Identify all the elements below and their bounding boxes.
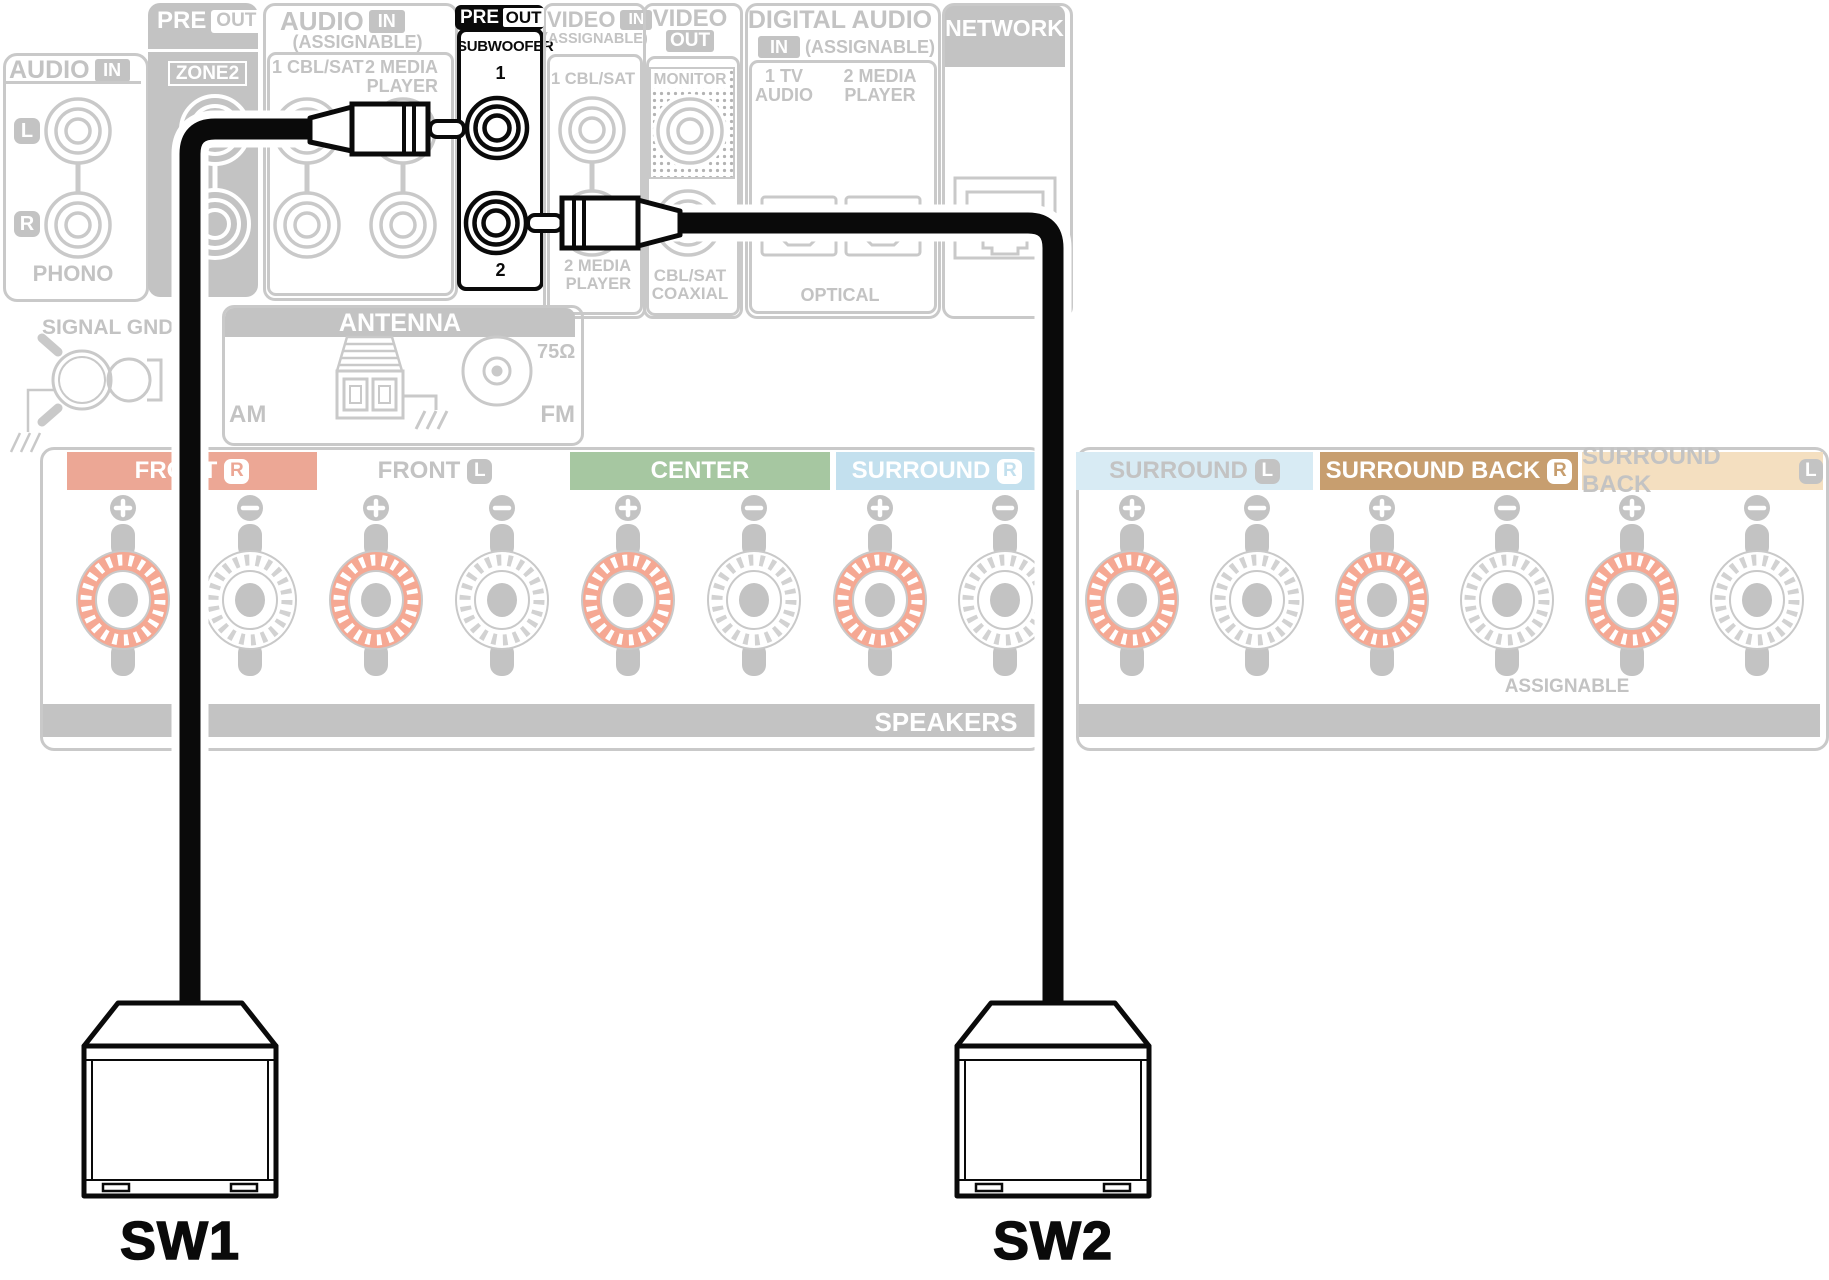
sw2-subwoofer-box: [957, 1003, 1149, 1196]
terminal-surround-r-pos: [834, 495, 926, 676]
terminal-surround-back-r-neg: [1461, 495, 1553, 676]
subwoofer-jack-1: [467, 98, 527, 158]
graphics-layer: [0, 0, 1829, 1280]
sw2-rca-plug: [528, 198, 680, 248]
speaker-terminals: [77, 495, 1803, 676]
am-terminal: [337, 371, 447, 429]
sw1-rca-plug: [310, 104, 464, 154]
fm-coax-jack: [463, 337, 531, 405]
terminal-surround-back-r-pos: [1336, 495, 1428, 676]
terminal-center-neg: [708, 495, 800, 676]
terminal-surround-l-neg: [1211, 495, 1303, 676]
terminal-center-pos: [582, 495, 674, 676]
am-loop-antenna-icon: [337, 337, 402, 371]
terminal-front-l-neg: [456, 495, 548, 676]
terminal-front-r-pos: [77, 495, 169, 676]
terminal-front-r-neg: [204, 495, 296, 676]
terminal-surround-l-pos: [1086, 495, 1178, 676]
terminal-front-l-pos: [330, 495, 422, 676]
sw2-label: SW2: [953, 1210, 1153, 1272]
terminal-surround-back-l-pos: [1586, 495, 1678, 676]
signal-gnd-terminal: [11, 338, 161, 452]
subwoofer-jack-2: [466, 193, 526, 253]
terminal-surround-back-l-neg: [1711, 495, 1803, 676]
monitor-jack: [653, 94, 727, 168]
diagram-canvas: AUDIO IN L R PHONO SIGNAL GND PRE OUT ZO…: [0, 0, 1829, 1280]
phono-jacks: [46, 99, 110, 257]
sw1-label: SW1: [80, 1210, 280, 1272]
sw1-subwoofer-box: [84, 1003, 276, 1196]
